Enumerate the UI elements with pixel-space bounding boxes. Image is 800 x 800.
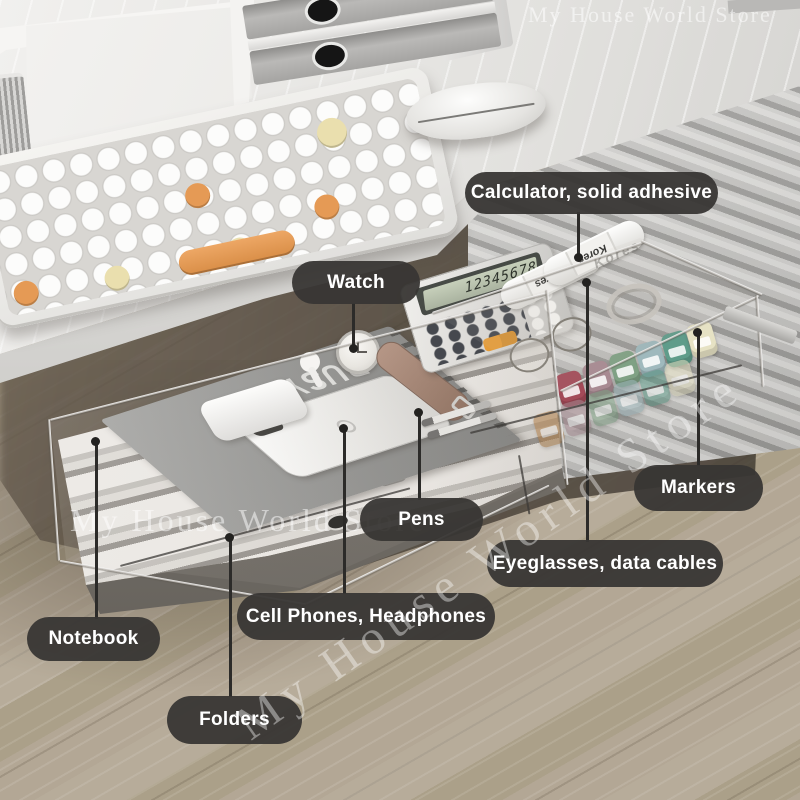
callout-line-cell-phones <box>343 430 346 594</box>
callout-eyeglasses: Eyeglasses, data cables <box>487 540 723 587</box>
keyboard-accent-key <box>312 192 342 222</box>
keyboard-accent-key <box>11 279 41 309</box>
product-photo-scene: I'M VERY BUSY 12345678 Kores Kores Kores <box>0 0 800 800</box>
keyboard-spacebar <box>177 228 298 277</box>
callout-folders: Folders <box>167 696 302 744</box>
binder-hole <box>306 0 339 24</box>
callout-pens: Pens <box>360 498 483 541</box>
callout-dot-calculator <box>574 253 583 262</box>
watch-hand <box>357 351 367 353</box>
callout-cell-phones: Cell Phones, Headphones <box>237 593 495 640</box>
callout-line-notebook <box>95 443 98 619</box>
callout-dot-pens <box>414 408 423 417</box>
callout-dot-eyeglasses <box>582 278 591 287</box>
callout-line-watch <box>352 303 355 349</box>
keyboard-accent-key <box>314 115 350 151</box>
mouse-seam <box>418 103 534 123</box>
callout-line-folders <box>229 539 232 697</box>
callout-dot-folders <box>225 533 234 542</box>
callout-calculator: Calculator, solid adhesive <box>465 172 718 214</box>
callout-line-eyeglasses <box>586 284 589 542</box>
callout-line-calculator <box>577 212 580 258</box>
callout-dot-cell-phones <box>339 424 348 433</box>
callout-markers: Markers <box>634 465 763 511</box>
callout-dot-watch <box>349 344 358 353</box>
callout-line-pens <box>418 414 421 500</box>
callout-line-markers <box>697 334 700 466</box>
callout-dot-notebook <box>91 437 100 446</box>
callout-watch: Watch <box>292 261 420 304</box>
keyboard-accent-key <box>183 181 213 211</box>
binder-hole <box>313 43 346 69</box>
eyeglass-lens <box>506 334 553 377</box>
callout-notebook: Notebook <box>27 617 160 661</box>
keyboard-accent-key <box>102 263 132 293</box>
callout-dot-markers <box>693 328 702 337</box>
